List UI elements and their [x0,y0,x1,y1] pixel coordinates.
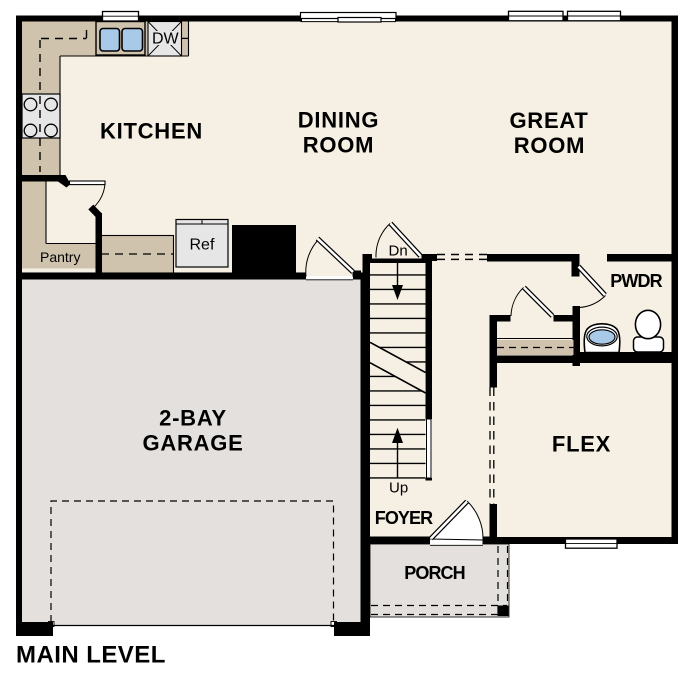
svg-text:KITCHEN: KITCHEN [100,119,203,144]
svg-text:PWDR: PWDR [610,271,662,291]
svg-text:GREAT: GREAT [509,108,588,133]
svg-text:ROOM: ROOM [514,133,585,158]
svg-text:Up: Up [389,480,408,497]
svg-text:PORCH: PORCH [404,563,465,583]
svg-text:FLEX: FLEX [552,432,611,457]
svg-text:Pantry: Pantry [40,249,80,265]
svg-text:ROOM: ROOM [303,133,374,158]
svg-text:DINING: DINING [298,108,380,133]
svg-text:Ref: Ref [190,237,215,254]
svg-text:Dn: Dn [389,243,408,260]
svg-text:2-BAY: 2-BAY [159,406,227,431]
svg-text:DW: DW [152,31,180,48]
svg-text:FOYER: FOYER [375,508,433,528]
svg-text:GARAGE: GARAGE [142,431,243,456]
svg-text:MAIN LEVEL: MAIN LEVEL [16,642,166,669]
